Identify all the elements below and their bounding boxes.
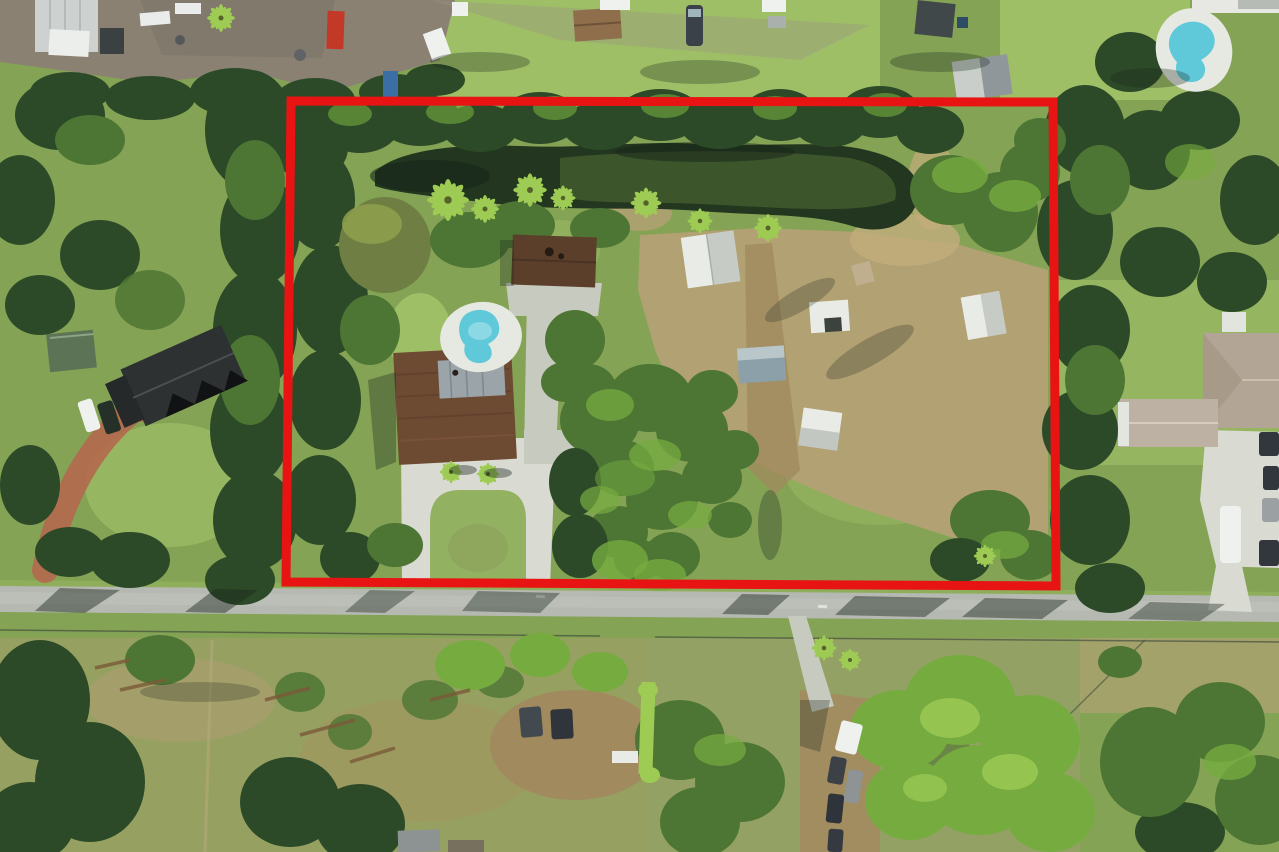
- house-top-middle: [573, 7, 622, 41]
- shed-white-2: [809, 300, 850, 334]
- shed-white-3: [961, 291, 1007, 340]
- neighbor-shed-green: [46, 330, 97, 373]
- shed-white-1: [681, 230, 741, 288]
- van-dark-top: [686, 5, 703, 46]
- aerial-photo: [0, 0, 1279, 852]
- shed-blue: [737, 345, 786, 383]
- garage-roof: [511, 235, 597, 288]
- shed-white-4: [798, 408, 842, 451]
